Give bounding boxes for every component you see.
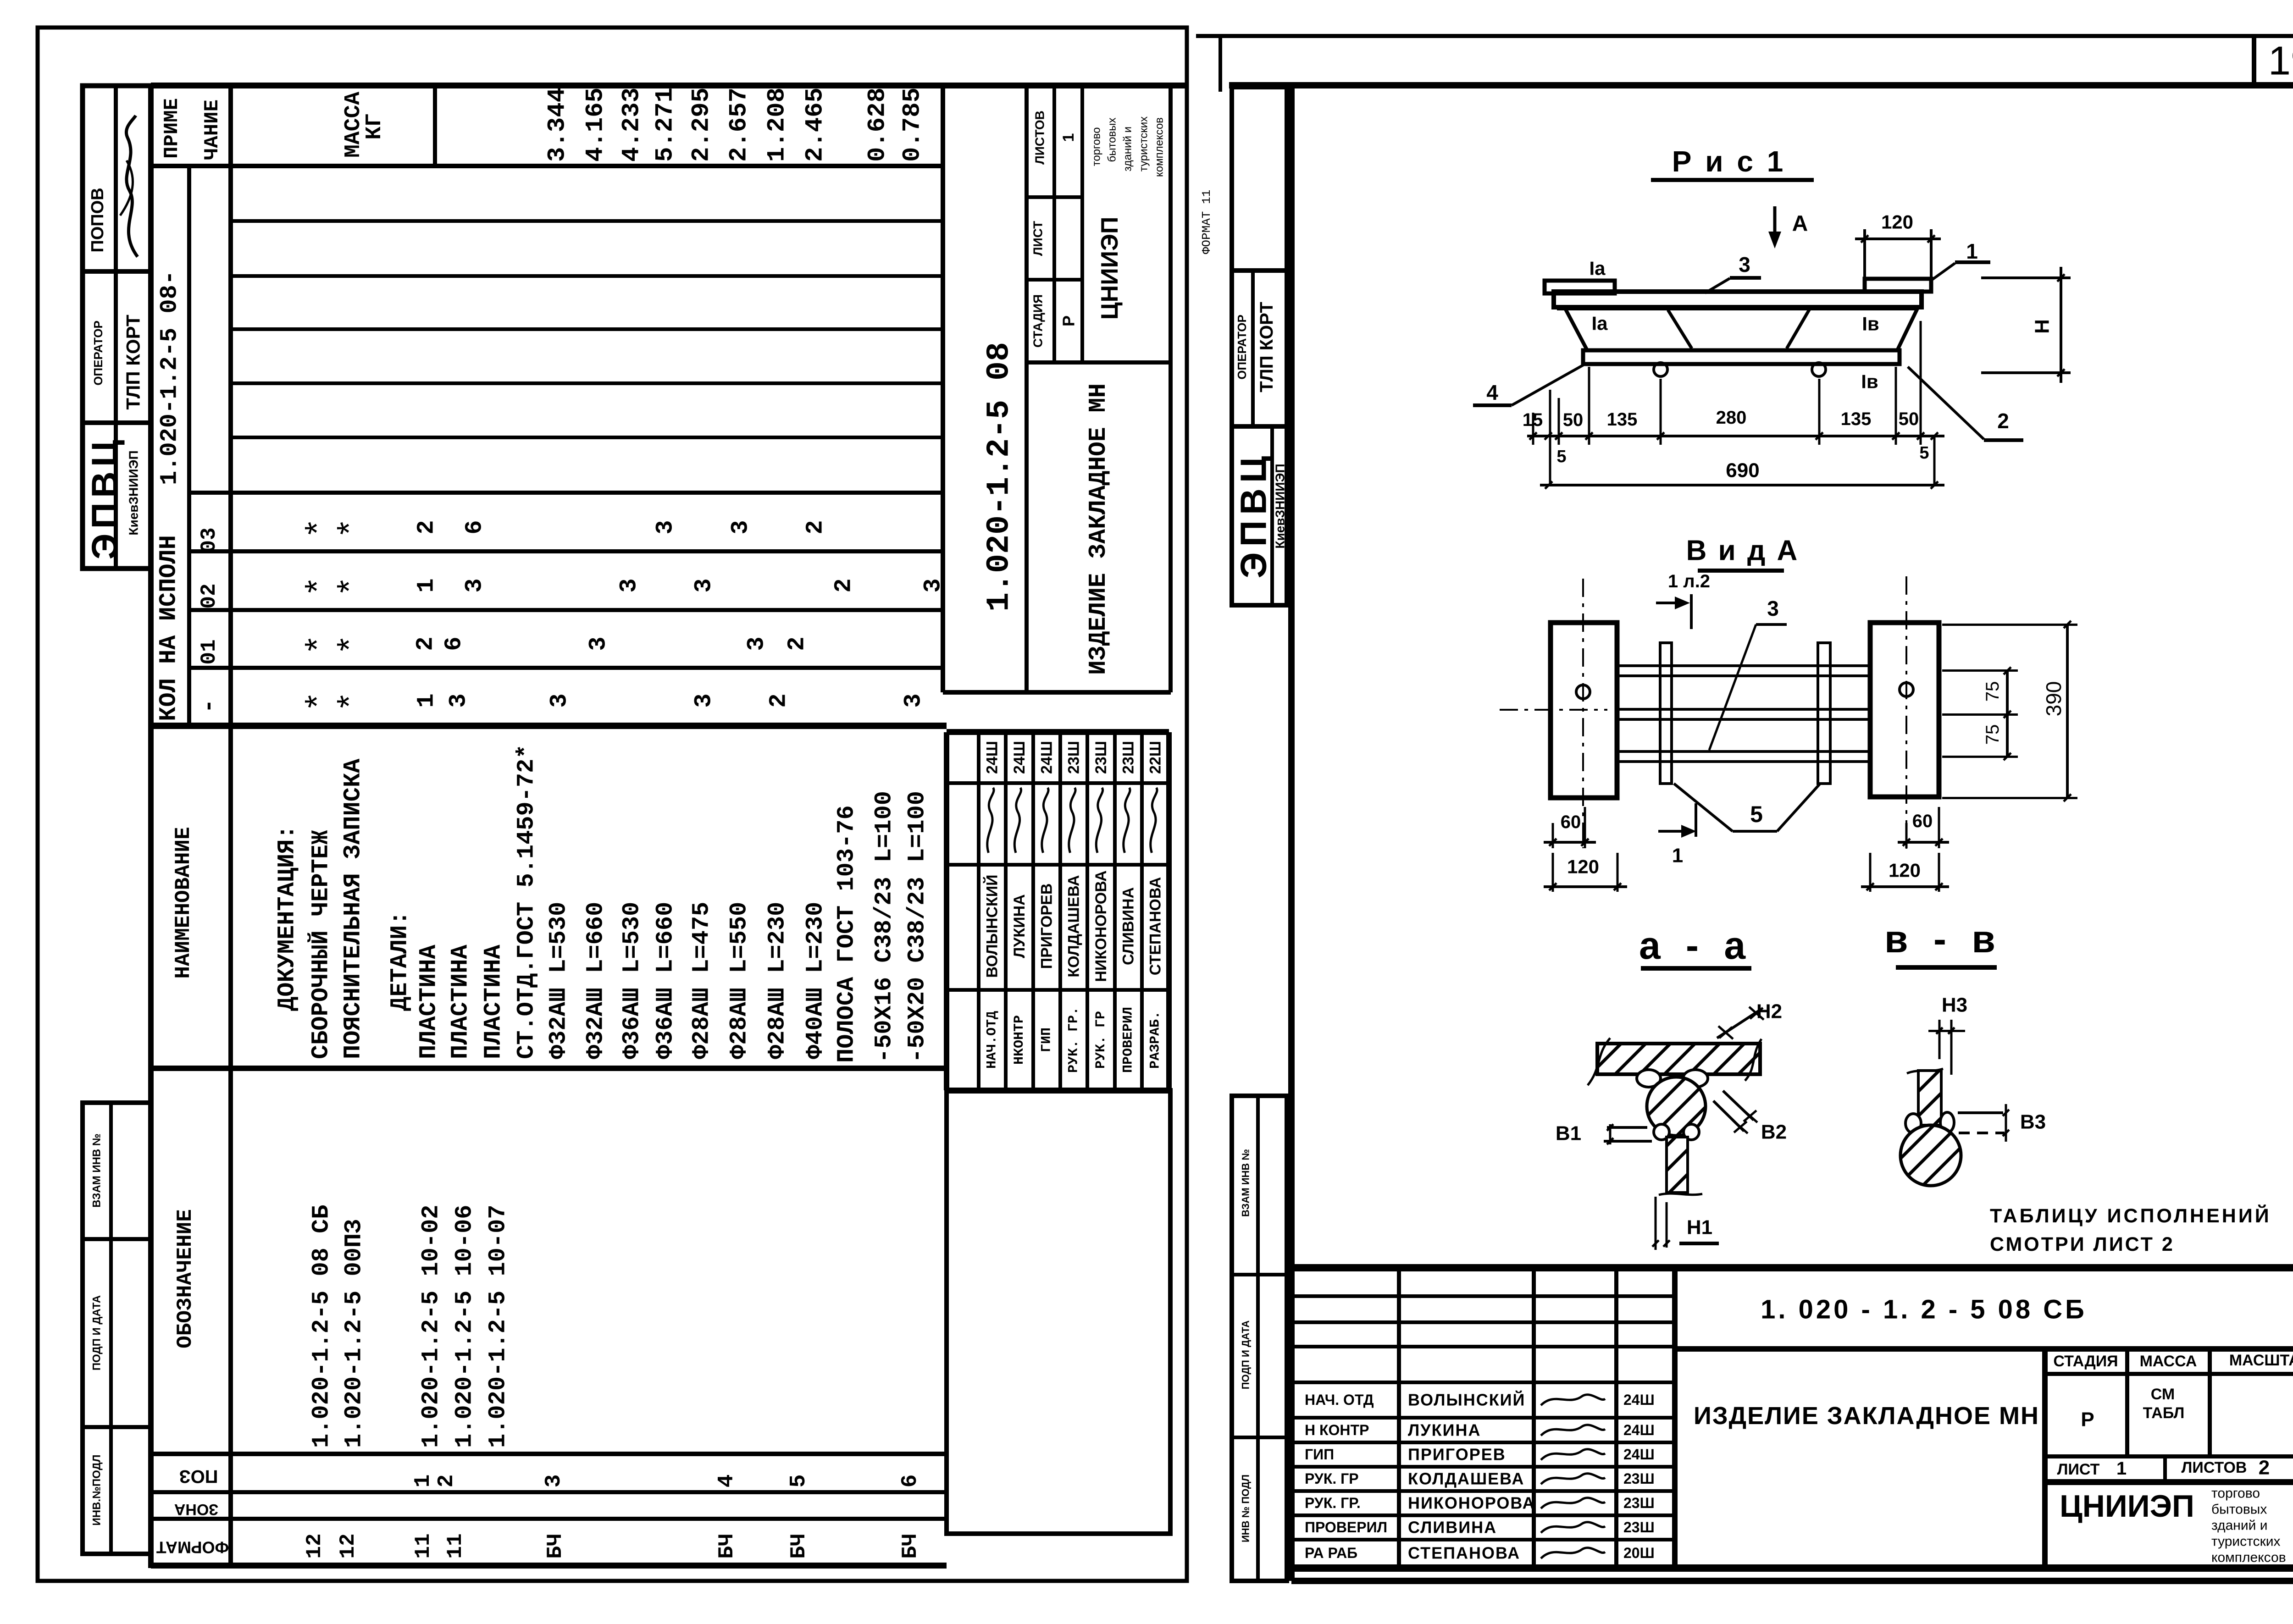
svg-text:В3: В3	[2020, 1111, 2046, 1133]
svg-text:НАИМЕНОВАНИЕ: НАИМЕНОВАНИЕ	[172, 827, 195, 978]
svg-text:Ф28АШ L=550: Ф28АШ L=550	[726, 902, 753, 1059]
svg-text:ОПЕРАТОР: ОПЕРАТОР	[1235, 315, 1249, 380]
svg-text:3: 3	[461, 578, 488, 592]
svg-text:120: 120	[1881, 211, 1913, 233]
svg-text:МАСШТАБ: МАСШТАБ	[2229, 1352, 2293, 1369]
svg-text:РУК. ГР: РУК. ГР	[1305, 1470, 1359, 1487]
svg-text:24Ш: 24Ш	[1038, 741, 1056, 774]
svg-text:1 л.2: 1 л.2	[1668, 571, 1710, 591]
svg-text:СБОРОЧНЫЙ ЧЕРТЕЖ: СБОРОЧНЫЙ ЧЕРТЕЖ	[307, 830, 335, 1059]
svg-text:1.020-1.2-5 10-07: 1.020-1.2-5 10-07	[485, 1205, 512, 1448]
svg-text:ПРИГОРЕВ: ПРИГОРЕВ	[1408, 1445, 1506, 1464]
svg-text:а - а: а - а	[1639, 924, 1753, 967]
svg-text:комплексов: комплексов	[2211, 1550, 2286, 1565]
svg-text:1. 020 - 1. 2 - 5 08 СБ: 1. 020 - 1. 2 - 5 08 СБ	[1761, 1295, 2087, 1325]
svg-text:Ф36АШ L=530: Ф36АШ L=530	[619, 902, 646, 1059]
svg-text:*: *	[334, 635, 372, 655]
svg-text:Ф32АШ L=660: Ф32АШ L=660	[582, 902, 609, 1059]
svg-text:СЛИВИНА: СЛИВИНА	[1120, 887, 1137, 965]
svg-text:КОЛ НА ИСПОЛН: КОЛ НА ИСПОЛН	[155, 535, 183, 721]
svg-text:1.020-1.2-5 10-02: 1.020-1.2-5 10-02	[418, 1205, 445, 1448]
svg-text:*: *	[334, 576, 372, 597]
svg-text:КОЛДАШЕВА: КОЛДАШЕВА	[1408, 1469, 1524, 1488]
svg-text:*: *	[334, 691, 372, 712]
svg-text:-50X20 С38/23 L=100: -50X20 С38/23 L=100	[904, 791, 931, 1063]
svg-text:ТЛП КОРТ: ТЛП КОРТ	[1257, 302, 1277, 392]
svg-text:120: 120	[1889, 860, 1921, 881]
svg-text:ДОКУМЕНТАЦИЯ:: ДОКУМЕНТАЦИЯ:	[274, 825, 301, 1011]
svg-text:ЛИСТОВ: ЛИСТОВ	[1033, 110, 1047, 165]
svg-text:ПОПОВ: ПОПОВ	[88, 188, 107, 252]
svg-text:75: 75	[1983, 681, 2003, 702]
svg-text:Р: Р	[2081, 1409, 2094, 1431]
svg-text:СТЕПАНОВА: СТЕПАНОВА	[1147, 877, 1164, 976]
svg-text:1.020-1.2-5 08-: 1.020-1.2-5 08-	[156, 271, 183, 485]
svg-text:1: 1	[1672, 845, 1683, 867]
svg-text:2: 2	[765, 693, 792, 707]
svg-text:280: 280	[1716, 408, 1747, 428]
svg-text:ИЗДЕЛИЕ ЗАКЛАДНОЕ МН: ИЗДЕЛИЕ ЗАКЛАДНОЕ МН	[1085, 383, 1112, 675]
svg-text:24Ш: 24Ш	[1011, 741, 1028, 774]
svg-text:1.020-1.2-5 08: 1.020-1.2-5 08	[982, 342, 1018, 612]
svg-text:01: 01	[197, 639, 221, 664]
svg-text:11: 11	[443, 1533, 467, 1558]
svg-text:03: 03	[197, 527, 221, 552]
svg-text:120: 120	[1567, 856, 1599, 878]
svg-text:ВОЛЫНСКИЙ: ВОЛЫНСКИЙ	[983, 874, 1001, 978]
svg-text:12: 12	[303, 1533, 327, 1558]
svg-text:Р и с 1: Р и с 1	[1672, 145, 1786, 178]
svg-text:В2: В2	[1761, 1121, 1787, 1143]
svg-text:торгово: торгово	[2211, 1486, 2260, 1501]
svg-text:туристских: туристских	[1138, 116, 1150, 171]
svg-text:РУК. ГР.: РУК. ГР.	[1066, 1007, 1082, 1073]
svg-text:1.208: 1.208	[764, 88, 792, 162]
svg-text:2.295: 2.295	[688, 88, 716, 162]
svg-text:туристских: туристских	[2211, 1534, 2280, 1549]
svg-text:В1: В1	[1556, 1122, 1581, 1145]
svg-text:В и д А: В и д А	[1686, 535, 1800, 567]
svg-text:2.465: 2.465	[802, 88, 830, 162]
svg-text:бытовых: бытовых	[1106, 117, 1119, 162]
svg-text:НАЧ. ОТД: НАЧ. ОТД	[1305, 1392, 1374, 1408]
svg-text:КиевЗНИИЭП: КиевЗНИИЭП	[127, 450, 141, 535]
svg-text:ЦНИИЭП: ЦНИИЭП	[1097, 217, 1123, 320]
svg-text:ИНВ.№ПОДЛ: ИНВ.№ПОДЛ	[91, 1455, 103, 1526]
svg-text:2: 2	[1997, 409, 2009, 433]
svg-text:Н3: Н3	[1942, 994, 1967, 1016]
svg-text:22Ш: 22Ш	[1147, 741, 1164, 774]
svg-text:23Ш: 23Ш	[1065, 741, 1083, 774]
svg-text:Iв: Iв	[1862, 313, 1879, 335]
svg-text:3: 3	[585, 636, 612, 651]
svg-text:3: 3	[542, 1475, 566, 1488]
svg-text:ПЛАСТИНА: ПЛАСТИНА	[415, 945, 443, 1059]
svg-text:СТАДИЯ: СТАДИЯ	[1031, 294, 1045, 348]
svg-text:23Ш: 23Ш	[1623, 1519, 1655, 1536]
svg-text:СМОТРИ ЛИСТ 2: СМОТРИ ЛИСТ 2	[1990, 1233, 2175, 1255]
svg-text:4.233: 4.233	[618, 88, 646, 162]
svg-text:5: 5	[1919, 443, 1929, 463]
svg-text:ИНВ № ПОДЛ: ИНВ № ПОДЛ	[1240, 1475, 1252, 1542]
svg-text:135: 135	[1841, 409, 1872, 429]
svg-text:НКОНТР: НКОНТР	[1012, 1015, 1027, 1065]
svg-text:ПЛАСТИНА: ПЛАСТИНА	[480, 945, 507, 1059]
svg-text:3: 3	[691, 578, 718, 592]
svg-text:торгово: торгово	[1091, 127, 1103, 166]
svg-text:3: 3	[900, 693, 927, 707]
svg-text:-: -	[196, 699, 223, 713]
svg-text:ЛУКИНА: ЛУКИНА	[1408, 1421, 1481, 1440]
svg-text:5: 5	[1556, 447, 1566, 466]
svg-text:КГ: КГ	[362, 113, 387, 140]
svg-text:ЛИСТ: ЛИСТ	[2057, 1461, 2100, 1478]
svg-text:ОБОЗНАЧЕНИЕ: ОБОЗНАЧЕНИЕ	[173, 1209, 197, 1348]
svg-text:1: 1	[2116, 1458, 2127, 1479]
svg-text:РА РАБ: РА РАБ	[1305, 1545, 1357, 1561]
svg-text:3.344: 3.344	[544, 88, 572, 162]
svg-text:6: 6	[461, 520, 488, 534]
svg-text:5: 5	[1750, 801, 1763, 827]
svg-text:БЧ: БЧ	[543, 1533, 567, 1558]
svg-text:ПОЯСНИТЕЛЬНАЯ ЗАПИСКА: ПОЯСНИТЕЛЬНАЯ ЗАПИСКА	[340, 758, 367, 1059]
svg-text:50: 50	[1563, 410, 1584, 430]
svg-text:РАЗРАБ.: РАЗРАБ.	[1148, 1011, 1163, 1069]
svg-text:23Ш: 23Ш	[1092, 741, 1110, 774]
svg-text:СЛИВИНА: СЛИВИНА	[1408, 1518, 1497, 1537]
svg-text:2: 2	[434, 1475, 459, 1488]
svg-text:ФОРМАТ: ФОРМАТ	[156, 1538, 229, 1557]
svg-text:ПОДП И ДАТА: ПОДП И ДАТА	[1240, 1320, 1252, 1390]
svg-text:02: 02	[197, 583, 221, 608]
svg-text:2: 2	[413, 520, 440, 534]
svg-text:24Ш: 24Ш	[1623, 1422, 1655, 1438]
svg-text:в - в: в - в	[1884, 917, 2003, 961]
svg-text:ОПЕРАТОР: ОПЕРАТОР	[91, 320, 105, 386]
svg-text:Iа: Iа	[1591, 313, 1608, 334]
svg-text:ПРОВЕРИЛ: ПРОВЕРИЛ	[1305, 1519, 1387, 1536]
svg-text:РУК. ГР: РУК. ГР	[1093, 1011, 1109, 1069]
svg-text:23Ш: 23Ш	[1623, 1495, 1655, 1511]
svg-text:БЧ: БЧ	[787, 1533, 811, 1558]
svg-text:3: 3	[1767, 597, 1779, 620]
svg-text:ДЕТАЛИ:: ДЕТАЛИ:	[387, 911, 414, 1011]
svg-text:60: 60	[1561, 812, 1581, 832]
svg-text:1: 1	[413, 578, 440, 592]
svg-text:2: 2	[784, 636, 811, 651]
svg-text:ЧАНИЕ: ЧАНИЕ	[201, 99, 224, 160]
svg-text:ЭПВЦ: ЭПВЦ	[84, 436, 125, 560]
svg-text:ИЗДЕЛИЕ ЗАКЛАДНОЕ МН: ИЗДЕЛИЕ ЗАКЛАДНОЕ МН	[1694, 1402, 2039, 1430]
svg-text:ЛУКИНА: ЛУКИНА	[1011, 894, 1028, 958]
svg-text:Ф32АШ L=530: Ф32АШ L=530	[545, 902, 572, 1059]
svg-text:НИКОНОРОВА: НИКОНОРОВА	[1408, 1494, 1535, 1513]
svg-text:*: *	[334, 518, 372, 538]
svg-text:БЧ: БЧ	[715, 1533, 739, 1558]
svg-text:1.020-1.2-5 08 СБ: 1.020-1.2-5 08 СБ	[308, 1205, 335, 1448]
svg-text:зданий и: зданий и	[2211, 1518, 2267, 1533]
svg-text:ПЛАСТИНА: ПЛАСТИНА	[447, 945, 474, 1059]
svg-text:ПОДП И ДАТА: ПОДП И ДАТА	[91, 1295, 103, 1370]
svg-text:Н1: Н1	[1687, 1216, 1712, 1239]
svg-text:3: 3	[1739, 253, 1750, 276]
svg-text:РУК. ГР.: РУК. ГР.	[1305, 1495, 1361, 1511]
svg-text:23Ш: 23Ш	[1120, 741, 1137, 774]
svg-text:ЛИСТОВ: ЛИСТОВ	[2182, 1459, 2247, 1476]
svg-text:ЛИСТ: ЛИСТ	[1031, 221, 1045, 256]
svg-text:МАССА: МАССА	[2140, 1353, 2197, 1370]
svg-text:0.785: 0.785	[899, 88, 927, 162]
svg-text:6: 6	[898, 1475, 923, 1488]
svg-text:12: 12	[336, 1533, 360, 1558]
svg-text:зданий и: зданий и	[1122, 127, 1134, 171]
svg-text:4: 4	[714, 1475, 739, 1488]
svg-text:1: 1	[1966, 239, 1978, 263]
svg-text:75: 75	[1983, 724, 2003, 745]
svg-text:2: 2	[2259, 1457, 2270, 1479]
svg-text:ПОЗ: ПОЗ	[179, 1466, 218, 1486]
svg-text:ГИП: ГИП	[1305, 1446, 1334, 1463]
svg-text:3: 3	[743, 636, 770, 651]
svg-text:СТЕПАНОВА: СТЕПАНОВА	[1408, 1544, 1520, 1563]
svg-text:1.020-1.2-5 10-06: 1.020-1.2-5 10-06	[451, 1205, 478, 1448]
svg-text:6: 6	[441, 636, 468, 651]
svg-text:15: 15	[1523, 410, 1543, 430]
svg-text:ПРОВЕРИЛ: ПРОВЕРИЛ	[1121, 1007, 1136, 1073]
svg-text:3: 3	[727, 520, 754, 534]
svg-text:50: 50	[1899, 409, 1919, 429]
svg-text:СТ.ОТД.ГОСТ 5.1459-72*: СТ.ОТД.ГОСТ 5.1459-72*	[513, 744, 540, 1059]
svg-text:5: 5	[786, 1475, 811, 1488]
svg-text:1: 1	[411, 1475, 436, 1488]
svg-text:3: 3	[652, 520, 679, 534]
svg-text:690: 690	[1726, 459, 1759, 482]
svg-text:Ф28АШ L=230: Ф28АШ L=230	[764, 902, 791, 1059]
svg-text:ТАБЛ: ТАБЛ	[2143, 1404, 2185, 1422]
svg-text:ПРИГОРЕВ: ПРИГОРЕВ	[1038, 884, 1056, 969]
svg-text:5.271: 5.271	[652, 88, 680, 162]
svg-text:1.020-1.2-5 00ПЗ: 1.020-1.2-5 00ПЗ	[341, 1219, 368, 1448]
svg-text:ПРИМЕ: ПРИМЕ	[161, 98, 183, 159]
svg-text:ЭПВЦ: ЭПВЦ	[1233, 451, 1274, 579]
svg-text:11: 11	[411, 1533, 435, 1558]
svg-text:4: 4	[1486, 381, 1498, 404]
svg-text:3: 3	[691, 693, 718, 707]
svg-text:ЗОНА: ЗОНА	[174, 1501, 218, 1518]
svg-text:-50X16 С38/23 L=100: -50X16 С38/23 L=100	[871, 791, 898, 1063]
svg-text:Iв: Iв	[1861, 371, 1878, 392]
svg-text:24Ш: 24Ш	[1623, 1446, 1655, 1463]
svg-text:24Ш: 24Ш	[984, 741, 1001, 774]
svg-text:комплексов: комплексов	[1153, 117, 1166, 177]
svg-text:3: 3	[546, 693, 573, 707]
svg-text:НАЧ.ОТД: НАЧ.ОТД	[985, 1011, 1000, 1069]
svg-text:Р: Р	[1059, 315, 1078, 326]
svg-text:Iа: Iа	[1589, 258, 1606, 279]
svg-text:390: 390	[2042, 681, 2066, 717]
svg-text:ПОЛОСА ГОСТ 103-76: ПОЛОСА ГОСТ 103-76	[833, 805, 860, 1063]
svg-text:23Ш: 23Ш	[1623, 1470, 1655, 1487]
svg-text:ВЗАМ ИНВ №: ВЗАМ ИНВ №	[1240, 1149, 1252, 1217]
svg-text:24Ш: 24Ш	[1623, 1392, 1655, 1408]
svg-text:Ф36АШ L=660: Ф36АШ L=660	[652, 902, 679, 1059]
svg-text:СТАДИЯ: СТАДИЯ	[2053, 1353, 2118, 1370]
svg-text:ТЛП КОРТ: ТЛП КОРТ	[122, 315, 144, 410]
svg-text:бытовых: бытовых	[2211, 1502, 2267, 1517]
svg-text:ЦНИИЭП: ЦНИИЭП	[2060, 1489, 2194, 1524]
svg-text:20Ш: 20Ш	[1623, 1545, 1655, 1561]
svg-text:ТАБЛИЦУ ИСПОЛНЕНИЙ: ТАБЛИЦУ ИСПОЛНЕНИЙ	[1990, 1204, 2271, 1227]
svg-text:Н КОНТР: Н КОНТР	[1305, 1422, 1369, 1438]
svg-text:ВОЛЫНСКИЙ: ВОЛЫНСКИЙ	[1408, 1390, 1525, 1409]
svg-text:Н: Н	[2031, 319, 2054, 334]
svg-text:Ф40АШ L=230: Ф40АШ L=230	[802, 902, 829, 1059]
svg-text:2: 2	[831, 578, 858, 592]
svg-text:ФОРМАТ 11: ФОРМАТ 11	[1200, 190, 1213, 254]
svg-text:1: 1	[413, 693, 440, 707]
svg-text:НИКОНОРОВА: НИКОНОРОВА	[1092, 870, 1110, 982]
svg-text:60: 60	[1912, 811, 1933, 831]
svg-text:19: 19	[2268, 38, 2293, 83]
svg-text:2.657: 2.657	[726, 88, 753, 162]
svg-text:ВЗАМ ИНВ №: ВЗАМ ИНВ №	[91, 1133, 103, 1207]
svg-text:1: 1	[1060, 133, 1077, 142]
svg-text:А: А	[1792, 212, 1808, 236]
svg-text:3: 3	[445, 693, 472, 707]
svg-text:3: 3	[616, 578, 643, 592]
svg-text:КиевЗНИИЭП: КиевЗНИИЭП	[1273, 464, 1287, 548]
svg-text:2: 2	[802, 520, 829, 534]
svg-text:КОЛДАШЕВА: КОЛДАШЕВА	[1065, 875, 1083, 977]
svg-text:0.628: 0.628	[864, 88, 892, 162]
svg-text:Ф28АШ L=475: Ф28АШ L=475	[688, 902, 715, 1059]
svg-text:ГИП: ГИП	[1039, 1027, 1055, 1052]
svg-text:4.165: 4.165	[582, 88, 610, 162]
svg-text:СМ: СМ	[2151, 1386, 2175, 1403]
svg-text:БЧ: БЧ	[898, 1533, 922, 1558]
svg-text:135: 135	[1607, 409, 1638, 430]
svg-text:2: 2	[412, 636, 439, 651]
